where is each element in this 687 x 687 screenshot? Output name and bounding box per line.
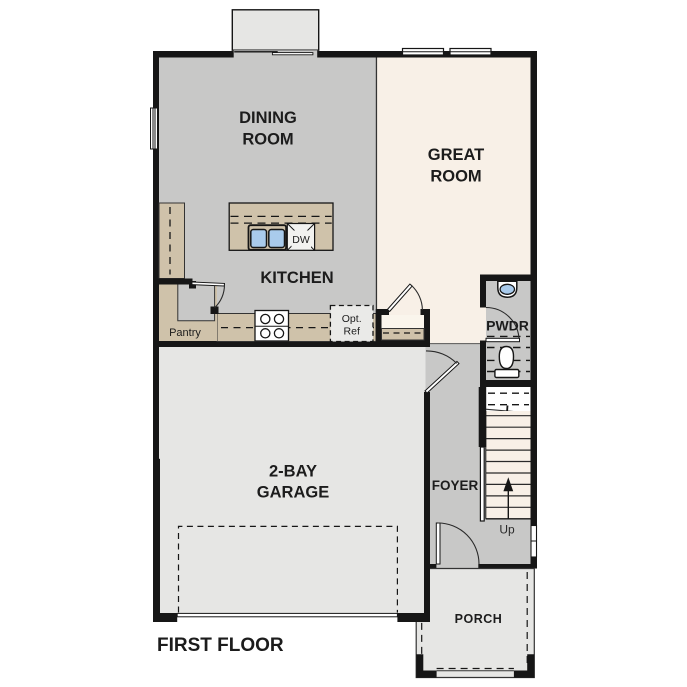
svg-text:KITCHEN: KITCHEN xyxy=(260,269,333,287)
svg-text:PWDR: PWDR xyxy=(486,318,529,334)
svg-text:Up: Up xyxy=(499,523,515,537)
svg-text:DW: DW xyxy=(292,234,310,246)
svg-text:FIRST FLOOR: FIRST FLOOR xyxy=(157,635,284,656)
svg-text:Ref: Ref xyxy=(344,326,360,338)
svg-text:ROOM: ROOM xyxy=(242,131,293,149)
svg-text:DINING: DINING xyxy=(239,109,297,127)
svg-text:GARAGE: GARAGE xyxy=(257,483,329,501)
svg-text:PORCH: PORCH xyxy=(455,612,503,626)
svg-text:2-BAY: 2-BAY xyxy=(269,463,317,481)
svg-text:GREAT: GREAT xyxy=(428,146,485,164)
svg-text:FOYER: FOYER xyxy=(432,478,479,493)
svg-text:Pantry: Pantry xyxy=(169,327,201,339)
svg-text:ROOM: ROOM xyxy=(430,168,481,186)
svg-text:Opt.: Opt. xyxy=(342,313,362,325)
